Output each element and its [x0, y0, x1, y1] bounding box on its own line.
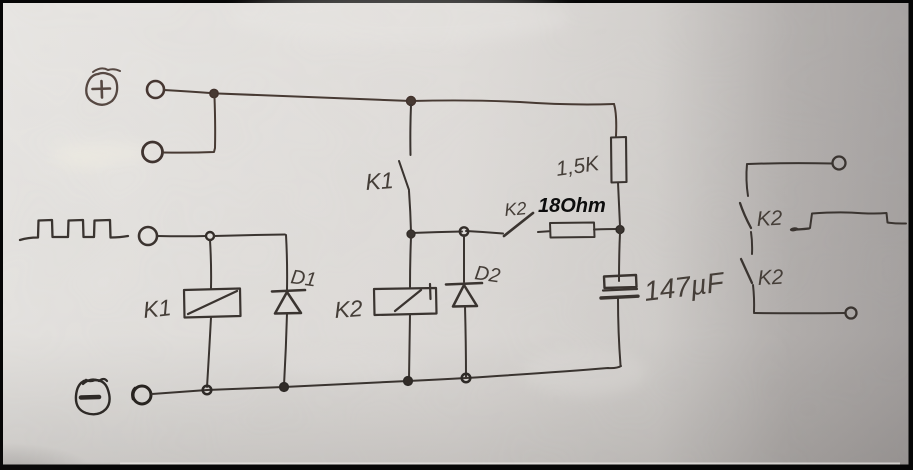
svg-text:K2: K2 — [756, 207, 783, 231]
svg-text:18Ohm: 18Ohm — [538, 195, 606, 217]
svg-text:D1: D1 — [289, 266, 317, 291]
svg-text:K1: K1 — [142, 294, 173, 323]
svg-text:K2: K2 — [757, 266, 784, 290]
svg-text:K2: K2 — [504, 198, 528, 220]
svg-text:K2: K2 — [334, 295, 364, 323]
svg-text:D2: D2 — [473, 262, 501, 287]
svg-text:K1: K1 — [365, 167, 395, 195]
